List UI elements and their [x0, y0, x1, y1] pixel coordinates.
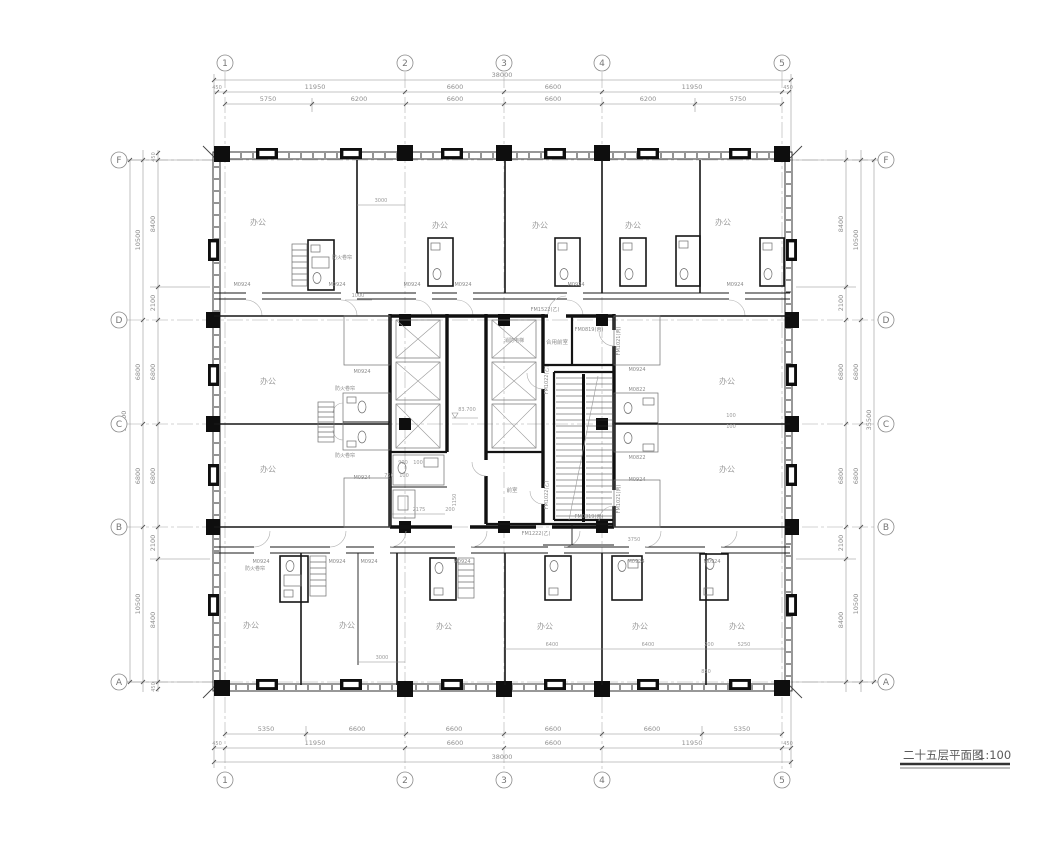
idim-750: 750: [384, 473, 394, 479]
dim-bot-r1-1: 11950: [305, 739, 326, 747]
idim-100-1: 100: [413, 460, 423, 466]
idim-2175: 2175: [413, 507, 426, 513]
room-label-office-11: 办公: [339, 620, 355, 630]
dim-right-c2-0: 8400: [837, 216, 845, 233]
idim-900: 900: [398, 460, 408, 466]
door-tag-m0924-5: M0924: [567, 282, 584, 288]
room-label-office-13: 办公: [537, 621, 553, 631]
door-tag-fm0819-2: FM0819(丙): [575, 514, 604, 520]
door-tag-fm1021-1: FM1021(丙): [616, 327, 622, 356]
dim-bot-r1-2: 6600: [447, 739, 464, 747]
core-service-rooms: [318, 296, 660, 527]
idim-3750: 3750: [628, 537, 641, 543]
elevation-value: 83.700: [458, 407, 476, 413]
dim-bot-r1-4: 11950: [682, 739, 703, 747]
dim-top-r2-1: 6200: [351, 95, 368, 103]
dim-top-r2-4: 6200: [640, 95, 657, 103]
dim-top-r2-3: 6600: [545, 95, 562, 103]
dim-bot-r2-5: 5350: [734, 725, 751, 733]
idim-100-3: 100: [726, 413, 736, 419]
idim-6400-1: 6400: [546, 642, 559, 648]
idim-850: 850: [701, 669, 711, 675]
dim-right-c1-0: 10500: [852, 230, 860, 251]
idim-1150: 1150: [452, 494, 458, 507]
room-label-office-4: 办公: [625, 220, 641, 230]
dim-top-r1-3: 6600: [545, 83, 562, 91]
door-tag-m0924-4: M0924: [454, 282, 471, 288]
dimension-lines-top: [212, 74, 793, 152]
grid-bubble-c-left: C: [116, 420, 122, 430]
grid-bubble-a-left: A: [116, 678, 123, 688]
door-tag-m0924-15: M0924: [628, 367, 645, 373]
door-tag-fm1522: FM1522(乙): [531, 306, 560, 313]
idim-5250: 5250: [738, 642, 751, 648]
bathrooms-top: [292, 236, 784, 290]
grid-bubble-5-top: 5: [779, 59, 785, 69]
door-tag-m0924-2: M0924: [328, 282, 345, 288]
idim-100-2: 100: [399, 473, 409, 479]
grid-bubble-3-bottom: 3: [501, 776, 507, 786]
dim-top-r1-0: 450: [212, 85, 222, 91]
grid-bubble-b-right: B: [883, 523, 889, 533]
grid-bubble-4-top: 4: [599, 59, 605, 69]
dim-right-c1-3: 10500: [852, 594, 860, 615]
dim-top-r2-5: 5750: [730, 95, 747, 103]
idim-3000-top: 3000: [375, 198, 388, 204]
door-tag-fm1022-1: FM1022(乙): [543, 366, 550, 395]
dim-bot-r2-0: 5350: [258, 725, 275, 733]
dim-top-total: 38000: [492, 71, 513, 79]
dim-top-r1-2: 6600: [447, 83, 464, 91]
dim-right-c1-2: 6800: [852, 468, 860, 485]
dim-bot-r1-5: 450: [783, 741, 793, 747]
dim-bot-r2-1: 6600: [349, 725, 366, 733]
door-tag-fm1022-2: FM1022(乙): [543, 481, 550, 510]
interior-dimensions: 3000 1000 3750 6400 6400 200 5250 850 30…: [345, 198, 786, 675]
dim-bot-total: 38000: [492, 753, 513, 761]
grid-centerlines: [127, 72, 880, 772]
idim-200-1: 200: [704, 642, 714, 648]
door-tag-fm1222: FM1222(乙): [522, 530, 551, 537]
grid-bubble-5-bottom: 5: [779, 776, 785, 786]
idim-6400-2: 6400: [642, 642, 655, 648]
structural-columns: [206, 145, 799, 697]
plan-svg: 38000 450 11950 6600 6600 11950 450 5750…: [0, 0, 1046, 842]
dim-left-c1-0: 10500: [134, 230, 142, 251]
room-label-office-7: 办公: [260, 464, 276, 474]
door-tag-m0924-12: M0924: [703, 559, 720, 565]
door-tag-m0924-14: M0924: [353, 475, 370, 481]
floor-plan-drawing: 38000 450 11950 6600 6600 11950 450 5750…: [0, 0, 1046, 842]
idim-3000-bottom: 3000: [376, 655, 389, 661]
door-tag-fm0819-1: FM0819(丙): [575, 327, 604, 333]
drawing-title: 二十五层平面图: [903, 748, 984, 762]
curtain-wall: [203, 146, 802, 698]
stair: [556, 374, 612, 522]
grid-bubble-1-bottom: 1: [222, 776, 228, 786]
grid-bubble-4-bottom: 4: [599, 776, 605, 786]
room-label-office-9: 办公: [719, 464, 735, 474]
room-label-office-5: 办公: [715, 217, 731, 227]
grid-bubble-f-left: F: [116, 156, 121, 166]
corridor-walls: [214, 293, 790, 553]
shutter-tag-2: 防火卷帘: [335, 385, 355, 392]
door-tag-m0924-7: M0924: [252, 559, 269, 565]
grid-bubble-d-left: D: [116, 316, 123, 326]
dim-left-c2-6: 8400: [149, 612, 157, 629]
dim-bot-r2-2: 6600: [446, 725, 463, 733]
dim-top-r1-5: 450: [783, 85, 793, 91]
idim-100-4: 100: [726, 424, 736, 430]
room-label-office-2: 办公: [432, 220, 448, 230]
dim-bot-r1-3: 6600: [545, 739, 562, 747]
dim-right-total: 35500: [865, 410, 873, 431]
room-label-office-8: 办公: [719, 376, 735, 386]
perimeter-window-columns: [208, 148, 797, 690]
dim-top-r2-2: 6600: [447, 95, 464, 103]
room-label-fire-elevator: 消防电梯: [504, 337, 524, 344]
dim-bot-r1-0: 450: [212, 741, 222, 747]
grid-bubble-a-right: A: [883, 678, 890, 688]
dim-left-c2-7: 450: [151, 682, 157, 692]
room-label-office-1: 办公: [250, 217, 266, 227]
dim-right-c2-3: 6800: [837, 468, 845, 485]
grid-bubbles-bottom: 1 2 3 4 5: [217, 772, 790, 788]
dim-left-c1-1: 6800: [134, 364, 142, 381]
dim-right-c2-4: 2100: [837, 535, 845, 552]
dim-left-c1-2: 6800: [134, 468, 142, 485]
shutter-tag-1: 防火卷帘: [332, 254, 352, 261]
title-block: 二十五层平面图 1:100: [900, 748, 1011, 768]
grid-bubble-b-left: B: [116, 523, 122, 533]
unit-partition-walls: [214, 160, 790, 685]
dim-top-r1-4: 11950: [682, 83, 703, 91]
room-label-front-room: 前室: [506, 486, 518, 494]
dim-left-c2-4: 6800: [149, 468, 157, 485]
room-label-office-10: 办公: [243, 620, 259, 630]
dim-right-c2-1: 2100: [837, 295, 845, 312]
dim-left-c2-1: 8400: [149, 216, 157, 233]
dim-top-r2-0: 5750: [260, 95, 277, 103]
door-tag-m0924-10: M0924: [453, 559, 470, 565]
grid-bubble-1-top: 1: [222, 59, 228, 69]
idim-1000: 1000: [352, 293, 365, 299]
dim-right-c1-1: 6800: [852, 364, 860, 381]
grid-bubble-f-right: F: [883, 156, 888, 166]
dim-left-c1-3: 10500: [134, 594, 142, 615]
drawing-scale: 1:100: [978, 748, 1011, 762]
door-tag-m0924-13: M0924: [353, 369, 370, 375]
dim-right-c2-5: 8400: [837, 612, 845, 629]
room-label-office-6: 办公: [260, 376, 276, 386]
grid-bubbles-left: F D C B A: [111, 152, 127, 690]
room-label-office-15: 办公: [729, 621, 745, 631]
room-label-shared-lobby: 合用前室: [546, 338, 569, 346]
dim-bot-r2-3: 6600: [545, 725, 562, 733]
dim-left-c2-0: 450: [151, 152, 157, 162]
shutter-tag-3: 防火卷帘: [335, 452, 355, 459]
door-tag-m0822-1: M0822: [628, 387, 645, 393]
grid-bubble-d-right: D: [883, 316, 890, 326]
dim-left-c2-2: 2100: [149, 295, 157, 312]
door-tag-m0924-9: M0924: [360, 559, 377, 565]
room-label-office-3: 办公: [532, 220, 548, 230]
door-tag-m0924-11: M0924: [627, 559, 644, 565]
dimension-text-top: 38000 450 11950 6600 6600 11950 450 5750…: [212, 71, 793, 103]
door-tag-m0924-3: M0924: [403, 282, 420, 288]
dim-left-c2-3: 6800: [149, 364, 157, 381]
dim-right-c2-2: 6800: [837, 364, 845, 381]
shutter-tag-4: 防火卷帘: [245, 565, 265, 572]
door-tag-m0924-8: M0924: [328, 559, 345, 565]
dim-top-r1-1: 11950: [305, 83, 326, 91]
idim-200-2: 200: [445, 507, 455, 513]
grid-bubble-c-right: C: [883, 420, 889, 430]
door-tag-fm1021-2: FM1021(丙): [616, 485, 622, 514]
dimension-text-bottom: 5350 6600 6600 6600 6600 5350 450 11950 …: [212, 725, 793, 761]
grid-bubble-3-top: 3: [501, 59, 507, 69]
door-tag-m0924-1: M0924: [233, 282, 250, 288]
room-label-office-12: 办公: [436, 621, 452, 631]
dim-left-c2-5: 2100: [149, 535, 157, 552]
door-tag-m0822-2: M0822: [628, 455, 645, 461]
grid-bubbles-top: 1 2 3 4 5: [217, 55, 790, 71]
dim-bot-r2-4: 6600: [644, 725, 661, 733]
door-tag-m0924-6: M0924: [726, 282, 743, 288]
grid-bubble-2-top: 2: [402, 59, 408, 69]
grid-bubble-2-bottom: 2: [402, 776, 408, 786]
elevation-marker: 83.700: [452, 407, 478, 418]
grid-bubbles-right: F D C B A: [878, 152, 894, 690]
door-tag-m0924-16: M0924: [628, 477, 645, 483]
dimension-text-right: 8400 2100 6800 6800 2100 8400 10500 6800…: [837, 216, 873, 629]
room-label-office-14: 办公: [632, 621, 648, 631]
